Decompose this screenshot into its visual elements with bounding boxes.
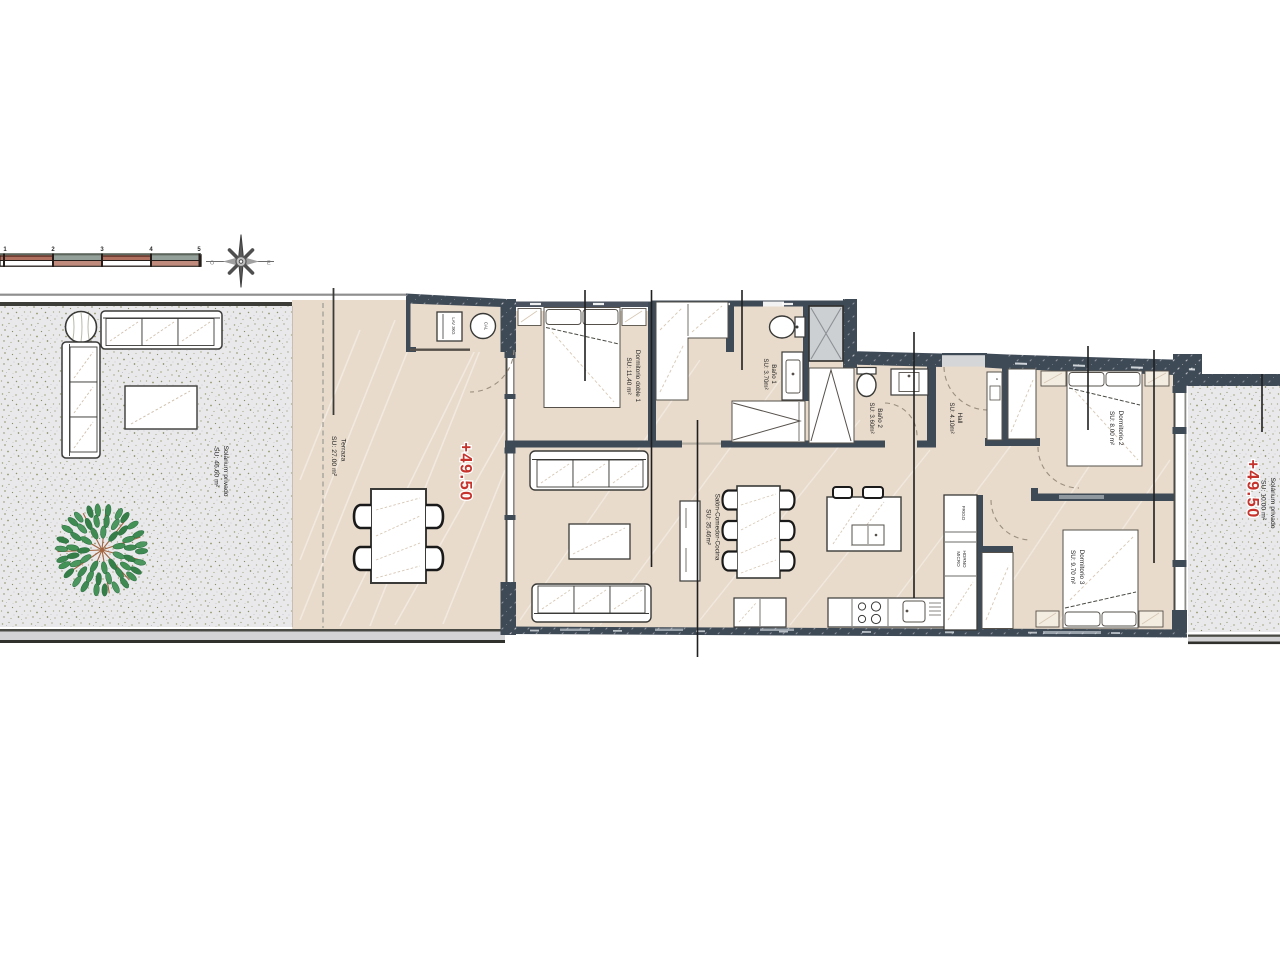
svg-text:a: a bbox=[995, 378, 999, 380]
svg-text:SU: 8.00 m²: SU: 8.00 m² bbox=[1108, 411, 1115, 445]
svg-text:Terraza: Terraza bbox=[340, 439, 347, 462]
svg-text:+49.50: +49.50 bbox=[457, 442, 475, 501]
svg-text:SU: 35.46m²: SU: 35.46m² bbox=[705, 509, 712, 545]
svg-text:SU: 10.00 m²: SU: 10.00 m² bbox=[1260, 480, 1267, 521]
svg-text:SU: 11.40 m²: SU: 11.40 m² bbox=[625, 357, 632, 394]
svg-text:SU: 4.10m²: SU: 4.10m² bbox=[948, 402, 955, 433]
svg-text:O: O bbox=[210, 261, 215, 267]
svg-text:Baño 2: Baño 2 bbox=[876, 408, 883, 428]
svg-text:Hall: Hall bbox=[956, 413, 963, 424]
svg-text:Baño 1: Baño 1 bbox=[770, 364, 777, 384]
svg-text:SU: 3.70m²: SU: 3.70m² bbox=[762, 358, 769, 389]
svg-text:SU: 46.60 m²: SU: 46.60 m² bbox=[213, 447, 220, 488]
svg-text:SU: 3.60m²: SU: 3.60m² bbox=[868, 402, 875, 433]
svg-text:Dormitorio 3: Dormitorio 3 bbox=[1078, 550, 1085, 585]
svg-text:SU: 27.00 m²: SU: 27.00 m² bbox=[330, 436, 337, 477]
svg-text:+49.50: +49.50 bbox=[1244, 459, 1262, 518]
svg-text:FRIGO: FRIGO bbox=[961, 506, 966, 521]
svg-text:Dormitorio doble 1: Dormitorio doble 1 bbox=[634, 350, 641, 403]
svg-text:Solárium privado: Solárium privado bbox=[222, 446, 229, 497]
svg-text:SU: 9.70 m²: SU: 9.70 m² bbox=[1069, 550, 1076, 584]
svg-text:LAV 3KG: LAV 3KG bbox=[451, 317, 456, 334]
svg-text:Solárium privado: Solárium privado bbox=[1269, 478, 1276, 529]
svg-text:E: E bbox=[267, 261, 271, 267]
svg-text:HORNO: HORNO bbox=[962, 550, 967, 568]
svg-text:MICRO: MICRO bbox=[956, 551, 961, 567]
svg-text:Dormitorio 2: Dormitorio 2 bbox=[1117, 411, 1124, 446]
svg-text:Salón-Comedor-Cocina: Salón-Comedor-Cocina bbox=[714, 494, 721, 561]
svg-text:CAL: CAL bbox=[484, 322, 489, 331]
